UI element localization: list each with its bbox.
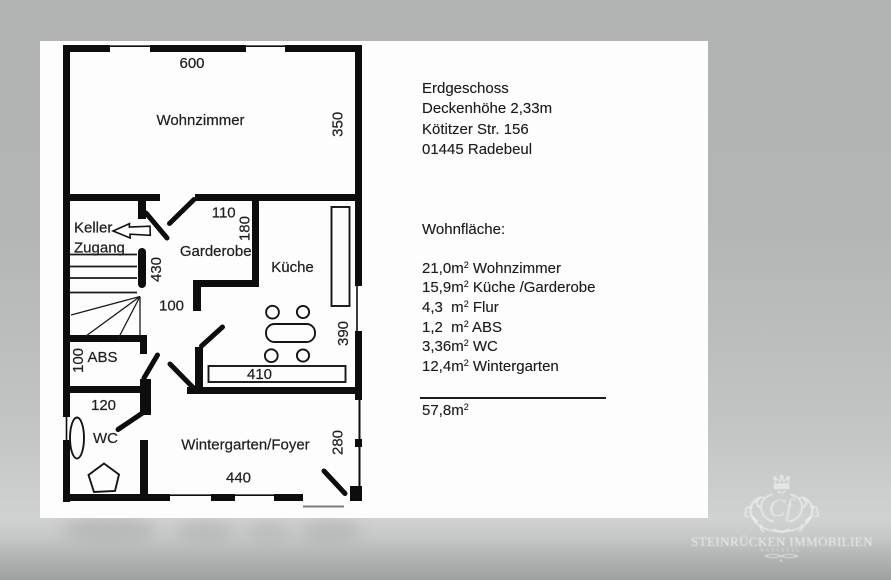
- svg-text:RADEBEUL: RADEBEUL: [760, 549, 801, 554]
- svg-text:Cf: Cf: [769, 495, 796, 522]
- svg-text:STEINRÜCKEN IMMOBILIEN: STEINRÜCKEN IMMOBILIEN: [691, 534, 873, 549]
